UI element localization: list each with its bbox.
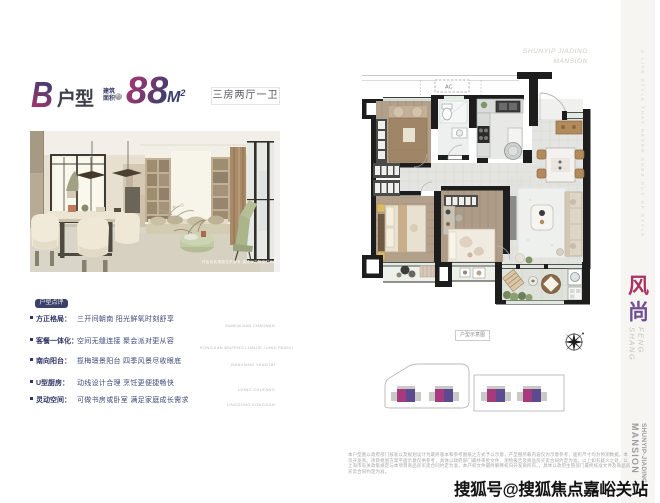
- svg-text:样板间效果图仅供参考 最终以实际交付为准: 样板间效果图仅供参考 最终以实际交付为准: [202, 259, 277, 264]
- svg-text:AC: AC: [445, 85, 453, 91]
